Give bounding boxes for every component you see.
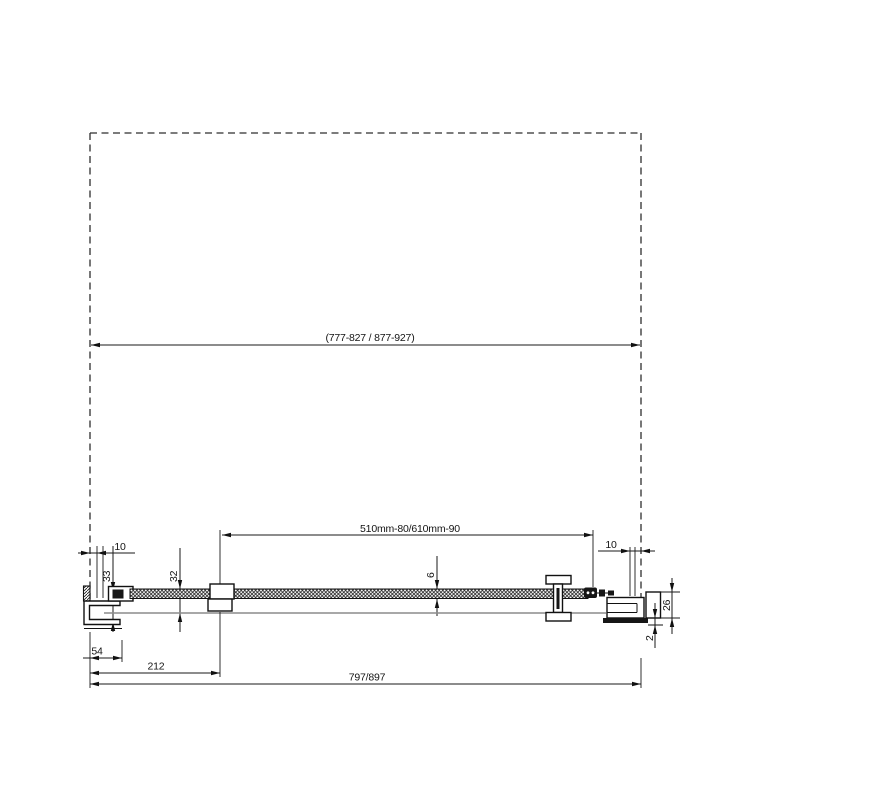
arrowhead — [670, 583, 674, 592]
dimension-fixed-part-offset: 54 — [83, 640, 122, 662]
arrowhead — [435, 580, 439, 589]
adjustment-gap-label: 2 — [644, 635, 656, 641]
clamp-upper — [210, 584, 234, 599]
opening-width-label: (777-827 / 877-927) — [325, 332, 414, 344]
arrowhead — [670, 618, 674, 627]
roller-body — [584, 588, 597, 599]
panel-offset-label: 32 — [168, 570, 180, 582]
dimension-right-wall-gap: 10 — [598, 539, 655, 596]
roller-pin — [587, 591, 590, 594]
arrowhead — [113, 656, 122, 660]
arrowhead — [435, 599, 439, 608]
fitting-block — [608, 591, 614, 596]
fixed-part-offset-label: 54 — [91, 646, 103, 658]
arrowhead — [631, 343, 640, 347]
roller-fittings — [584, 588, 614, 599]
arrowhead — [97, 551, 106, 555]
glass-panel-section — [130, 589, 588, 599]
arrowhead — [211, 671, 220, 675]
bottom-rail-bar — [603, 618, 648, 623]
right-profile-depth-label: 26 — [661, 599, 673, 611]
h-profile-top-flange — [546, 576, 571, 585]
h-profile-bottom-flange — [546, 613, 571, 622]
dimension-glass-width: 510mm-80/610mm-90 — [220, 523, 593, 587]
dimension-glass-thickness: 6 — [425, 556, 439, 616]
center-clamp-block — [208, 584, 234, 611]
arrowhead — [91, 343, 100, 347]
dimension-total-width: 797/897 — [90, 632, 641, 688]
arrowhead — [90, 682, 99, 686]
arrowhead — [81, 551, 90, 555]
left-profile-depth-label: 33 — [101, 570, 113, 582]
total-width-label: 797/897 — [349, 672, 386, 684]
left-wall-profile — [84, 586, 134, 629]
wall-anchor-strip — [84, 586, 91, 601]
arrowhead — [632, 682, 641, 686]
dimension-opening-width: (777-827 / 877-927) — [91, 332, 640, 347]
glass-thickness-label: 6 — [425, 572, 437, 578]
technical-drawing-canvas: (777-827 / 877-927) 510mm-80/610mm-90 10… — [0, 0, 893, 807]
clamp-lower — [208, 599, 232, 611]
fitting-block — [599, 590, 605, 597]
h-profile-core — [557, 588, 560, 609]
right-wall-profile — [603, 592, 663, 625]
arrowhead — [584, 533, 593, 537]
guide-channel — [607, 598, 644, 619]
left-wall-gap-label: 10 — [114, 541, 126, 553]
clamp-insert — [113, 590, 124, 599]
arrowhead — [621, 549, 630, 553]
dimension-right-profile-depth: 26 — [661, 578, 681, 634]
roller-pin — [592, 591, 595, 594]
arrowhead — [222, 533, 231, 537]
wall-bracket — [646, 592, 661, 618]
right-wall-gap-label: 10 — [605, 539, 617, 551]
arrowhead — [653, 625, 657, 634]
glass-width-label: 510mm-80/610mm-90 — [360, 523, 460, 535]
arrowhead — [178, 613, 182, 622]
arrowhead — [90, 671, 99, 675]
drawing-page: (777-827 / 877-927) 510mm-80/610mm-90 10… — [0, 0, 893, 807]
arrowhead — [641, 549, 650, 553]
clamp-position-label: 212 — [148, 661, 165, 673]
